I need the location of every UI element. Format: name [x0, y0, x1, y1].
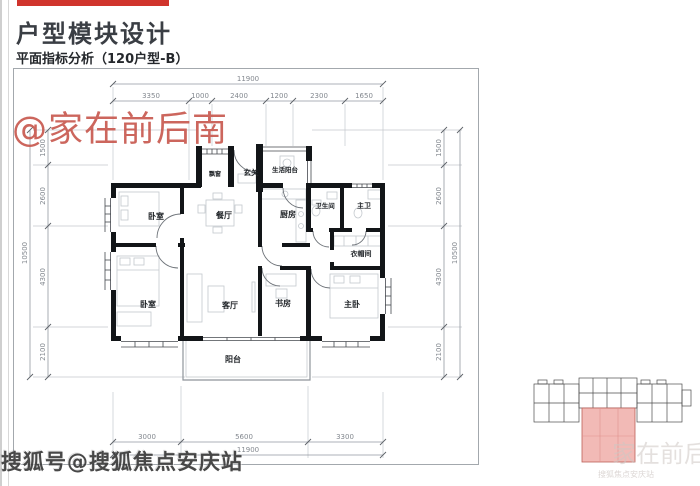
room-label-woshi-2: 卧室	[140, 299, 156, 309]
dim-left-seg: 2100	[39, 343, 47, 361]
dim-top-seg: 2300	[310, 92, 328, 100]
room-label-zhuwo: 主卧	[344, 299, 360, 309]
room-label-yangtai: 阳台	[225, 354, 241, 364]
balcony-outline	[183, 341, 310, 380]
room-label-piaochuang: 飘窗	[208, 170, 221, 178]
watermark-faint-corner-sub: 搜狐焦点安庆站	[598, 469, 654, 480]
dim-top-seg: 2400	[230, 92, 248, 100]
dim-right-seg: 4300	[435, 268, 443, 286]
dim-top-seg: 1200	[270, 92, 288, 100]
dim-left-seg: 4300	[39, 268, 47, 286]
dim-top-seg: 1000	[191, 92, 209, 100]
dim-bottom-seg: 5600	[235, 433, 253, 441]
dim-left-seg: 2600	[39, 187, 47, 205]
room-label-zhuwei: 主卫	[357, 201, 371, 210]
dim-top-total: 11900	[237, 75, 259, 83]
dim-bottom-seg: 3000	[138, 433, 156, 441]
watermark-red-handle: @家在前后南	[12, 101, 228, 152]
dim-top-seg: 1650	[355, 92, 373, 100]
room-label-canting: 餐厅	[215, 210, 232, 220]
room-label-xuanguan: 玄关	[244, 167, 259, 177]
dim-top-seg: 3350	[142, 92, 160, 100]
dim-right-seg: 2100	[435, 343, 443, 361]
watermark-sohu-footer: 搜狐号@搜狐焦点安庆站	[1, 446, 243, 476]
room-label-keting: 客厅	[221, 300, 238, 310]
room-label-yimaojian: 衣帽间	[351, 249, 372, 258]
floor-plan-canvas: 11900 3350 1000 2400 1200 2300 1650 3000…	[0, 0, 700, 486]
room-label-weishengjian: 卫生间	[315, 201, 335, 210]
page: 户型模块设计 平面指标分析（120户型-B）	[0, 0, 700, 486]
room-label-shufang: 书房	[275, 298, 291, 308]
watermark-faint-corner: 家在前后南	[612, 434, 700, 469]
furniture-layer	[117, 156, 382, 326]
room-label-woshi-1: 卧室	[148, 211, 164, 221]
dim-right-total: 10500	[451, 242, 459, 264]
dim-right-seg: 1500	[435, 139, 443, 157]
dim-bottom-seg: 3300	[336, 433, 354, 441]
room-label-chufang: 厨房	[280, 209, 296, 219]
dim-left-total: 10500	[21, 242, 29, 264]
room-label-shenghuo-yangtai: 生活阳台	[272, 165, 299, 174]
dim-right-seg: 2600	[435, 187, 443, 205]
